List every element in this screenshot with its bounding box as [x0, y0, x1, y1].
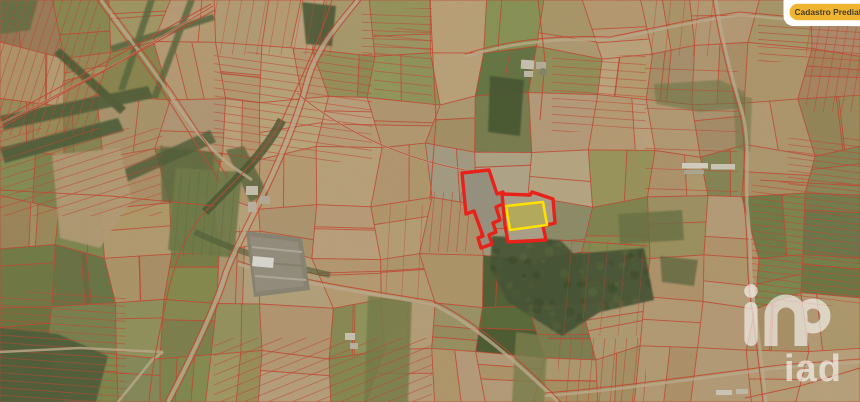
svg-text:Cadastro Predial: Cadastro Predial [795, 7, 860, 17]
svg-text:iad: iad [784, 348, 842, 390]
